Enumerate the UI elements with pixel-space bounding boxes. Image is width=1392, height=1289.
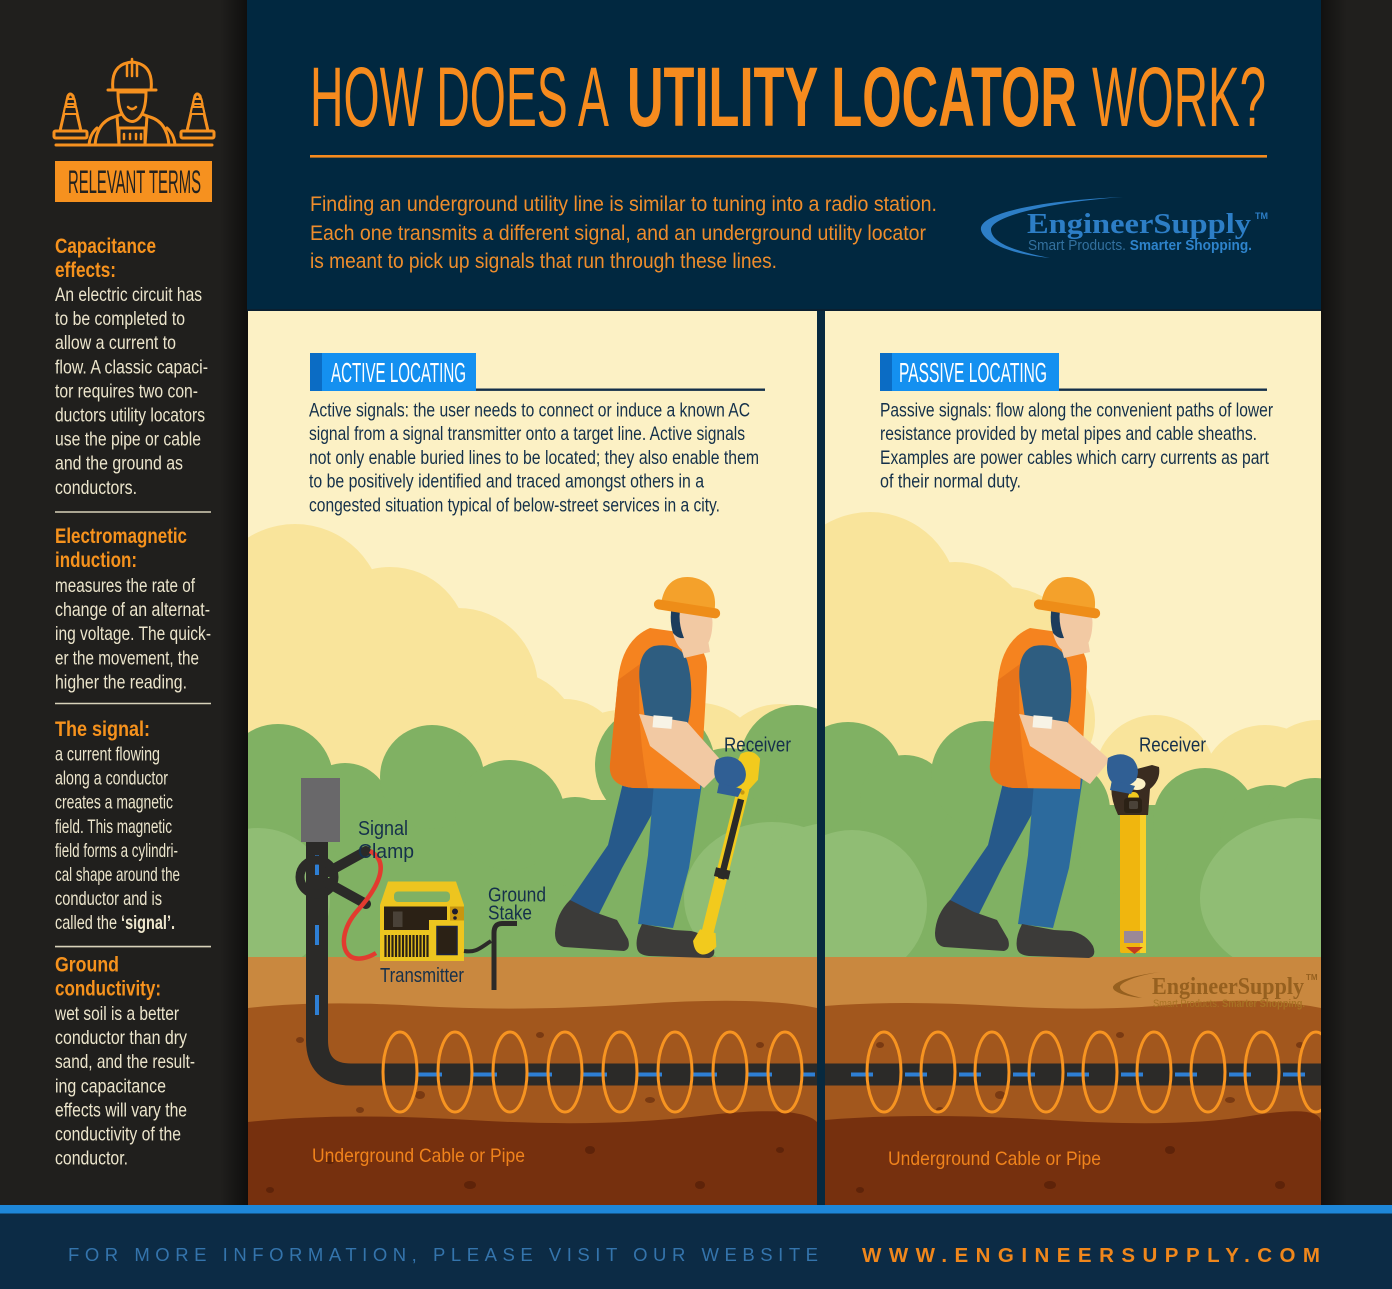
svg-text:of their normal duty.: of their normal duty. bbox=[880, 472, 1021, 493]
svg-text:not only enable buried lines t: not only enable buried lines to be locat… bbox=[309, 448, 759, 469]
svg-text:wet soil is a better: wet soil is a better bbox=[54, 1003, 179, 1025]
svg-text:Active signals: the user needs: Active signals: the user needs to connec… bbox=[309, 401, 750, 422]
svg-text:cal shape around the: cal shape around the bbox=[55, 864, 180, 886]
svg-text:to be completed to: to be completed to bbox=[55, 308, 185, 330]
svg-text:field forms a cylindri-: field forms a cylindri- bbox=[55, 840, 178, 862]
svg-text:UTILITY LOCATOR: UTILITY LOCATOR bbox=[627, 50, 1077, 144]
svg-text:Each one transmits a different: Each one transmits a different signal, a… bbox=[310, 221, 926, 245]
svg-text:Underground Cable or Pipe: Underground Cable or Pipe bbox=[312, 1145, 525, 1167]
svg-text:measures the rate of: measures the rate of bbox=[55, 575, 195, 597]
svg-text:Passive signals: flow along th: Passive signals: flow along the convenie… bbox=[880, 401, 1274, 422]
svg-text:Electromagnetic: Electromagnetic bbox=[55, 525, 187, 548]
svg-text:conductor than dry: conductor than dry bbox=[55, 1027, 187, 1049]
svg-text:Transmitter: Transmitter bbox=[380, 965, 464, 987]
svg-text:called the ‘signal’.: called the ‘signal’. bbox=[55, 912, 175, 934]
svg-text:Smart Products. Smarter Shoppi: Smart Products. Smarter Shopping. bbox=[1028, 238, 1252, 254]
svg-text:The signal:: The signal: bbox=[55, 718, 150, 741]
svg-text:creates a magnetic: creates a magnetic bbox=[55, 792, 173, 814]
svg-text:effects:: effects: bbox=[55, 259, 116, 282]
svg-text:EngineerSupply: EngineerSupply bbox=[1027, 208, 1252, 240]
svg-text:er the movement, the: er the movement, the bbox=[55, 647, 199, 669]
svg-text:Ground: Ground bbox=[55, 954, 119, 977]
svg-text:Signal: Signal bbox=[358, 818, 408, 840]
svg-text:tor requires two con-: tor requires two con- bbox=[55, 380, 198, 402]
svg-text:conductivity:: conductivity: bbox=[55, 978, 161, 1001]
svg-text:ACTIVE LOCATING: ACTIVE LOCATING bbox=[331, 357, 466, 388]
svg-text:EngineerSupply: EngineerSupply bbox=[1152, 974, 1304, 1000]
svg-text:ing capacitance: ing capacitance bbox=[55, 1075, 166, 1097]
svg-text:Examples are power cables whic: Examples are power cables which carry cu… bbox=[880, 448, 1270, 469]
svg-text:use the pipe or cable: use the pipe or cable bbox=[55, 429, 201, 451]
svg-text:resistance provided by metal p: resistance provided by metal pipes and c… bbox=[880, 424, 1257, 445]
svg-text:Stake: Stake bbox=[488, 903, 532, 925]
svg-text:ductors utility locators: ductors utility locators bbox=[55, 405, 205, 427]
svg-text:TM: TM bbox=[1306, 973, 1318, 982]
svg-text:Capacitance: Capacitance bbox=[55, 235, 156, 258]
svg-text:and the ground as: and the ground as bbox=[55, 453, 183, 475]
svg-text:FOR MORE INFORMATION, PLEASE V: FOR MORE INFORMATION, PLEASE VISIT OUR W… bbox=[68, 1244, 818, 1265]
svg-text:RELEVANT TERMS: RELEVANT TERMS bbox=[68, 164, 201, 200]
svg-text:HOW DOES A: HOW DOES A bbox=[310, 50, 609, 144]
svg-text:allow a current to: allow a current to bbox=[55, 332, 176, 354]
svg-text:WORK?: WORK? bbox=[1092, 50, 1266, 144]
svg-text:conductor and is: conductor and is bbox=[55, 888, 162, 910]
svg-text:field. This magnetic: field. This magnetic bbox=[55, 816, 172, 838]
svg-text:effects will vary the: effects will vary the bbox=[55, 1099, 187, 1121]
svg-text:PASSIVE LOCATING: PASSIVE LOCATING bbox=[899, 357, 1047, 388]
svg-text:change of an alternat-: change of an alternat- bbox=[55, 599, 210, 621]
svg-text:is meant to pick up signals th: is meant to pick up signals that run thr… bbox=[310, 249, 777, 273]
svg-text:conductors.: conductors. bbox=[55, 477, 137, 499]
svg-text:conductivity of the: conductivity of the bbox=[55, 1124, 181, 1146]
svg-text:An electric circuit has: An electric circuit has bbox=[55, 284, 202, 306]
svg-text:conductor.: conductor. bbox=[55, 1148, 128, 1170]
svg-text:congested situation typical of: congested situation typical of below-str… bbox=[309, 495, 720, 516]
svg-text:along a conductor: along a conductor bbox=[55, 768, 168, 790]
svg-text:a current flowing: a current flowing bbox=[55, 744, 160, 766]
svg-text:TM: TM bbox=[1255, 211, 1268, 221]
svg-text:signal from a signal transmitt: signal from a signal transmitter onto a … bbox=[309, 424, 745, 445]
svg-text:Clamp: Clamp bbox=[358, 841, 414, 863]
svg-text:induction:: induction: bbox=[55, 549, 137, 572]
svg-text:higher the reading.: higher the reading. bbox=[55, 671, 187, 693]
svg-text:Underground Cable or Pipe: Underground Cable or Pipe bbox=[888, 1148, 1101, 1170]
svg-text:to be positively identified an: to be positively identified and traced a… bbox=[309, 472, 704, 493]
svg-text:flow. A classic capaci-: flow. A classic capaci- bbox=[55, 356, 208, 378]
svg-text:Smart Products. Smarter Shoppi: Smart Products. Smarter Shopping. bbox=[1153, 998, 1305, 1010]
svg-text:Receiver: Receiver bbox=[1139, 735, 1206, 757]
svg-text:sand, and the result-: sand, and the result- bbox=[55, 1051, 195, 1073]
svg-text:ing voltage. The quick-: ing voltage. The quick- bbox=[55, 623, 211, 645]
svg-text:Receiver: Receiver bbox=[724, 735, 791, 757]
svg-text:Finding an underground utility: Finding an underground utility line is s… bbox=[310, 192, 937, 216]
